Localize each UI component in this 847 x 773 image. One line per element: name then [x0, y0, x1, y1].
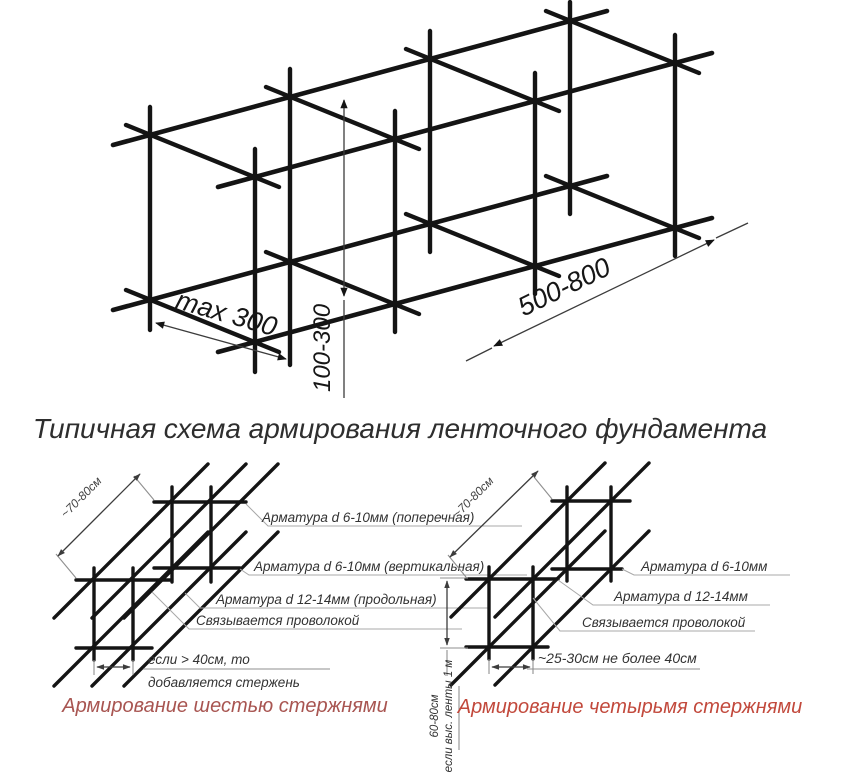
label-wire-tie-r: Связывается проволокой	[582, 615, 746, 630]
label-extra-rod-1: если > 40см, то	[148, 652, 250, 667]
dim-500-800-ext-left	[466, 348, 492, 361]
label-longitudinal-rebar-r: Арматура d 12-14мм	[613, 589, 748, 604]
dim-70-80-ext-left	[56, 554, 76, 578]
label-vertical-rebar: Арматура d 6-10мм (вертикальная)	[253, 559, 484, 574]
four-rod-caption: Армирование четырьмя стержнями	[457, 696, 802, 718]
six-rod-dimensions: ~70-80см если > 40см, то добавляется сте…	[56, 474, 330, 690]
rebar-cage-isometric-drawing: max 300 100-300 500-800	[113, 2, 748, 398]
label-extra-rod-2: добавляется стержень	[148, 675, 300, 690]
dim-height-label-2: если выс. ленты 1 м	[443, 660, 455, 773]
dim-500-800-ext-right	[716, 223, 748, 238]
label-transverse-rebar: Арматура d 6-10мм (поперечная)	[261, 510, 474, 525]
dim-100-300-label: 100-300	[309, 303, 336, 392]
figure-title: Типичная схема армирования ленточного фу…	[33, 413, 767, 444]
label-wire-tie: Связывается проволокой	[196, 613, 360, 628]
dim-height-label-1: 60-80см	[429, 694, 441, 737]
scheme-svg: max 300 100-300 500-800 Типичная схема а…	[0, 0, 847, 773]
dim-70-80-ext-right-r	[534, 477, 552, 499]
label-longitudinal-rebar: Арматура d 12-14мм (продольная)	[215, 592, 437, 607]
dim-70-80-label-left: ~70-80см	[58, 474, 105, 521]
cage-dimensions: max 300 100-300 500-800	[156, 100, 748, 398]
four-rod-diagram: Арматура d 6-10мм Арматура d 12-14мм Свя…	[429, 463, 802, 772]
six-rod-caption: Армирование шестью стержнями	[61, 695, 388, 717]
dim-max300-label: max 300	[173, 285, 281, 342]
label-transverse-rebar-r: Арматура d 6-10мм	[640, 559, 767, 574]
reinforcement-scheme-page: max 300 100-300 500-800 Типичная схема а…	[0, 0, 847, 773]
dim-25-30-label: ~25-30см не более 40см	[538, 650, 697, 666]
dim-70-80-ext-right	[134, 476, 154, 500]
